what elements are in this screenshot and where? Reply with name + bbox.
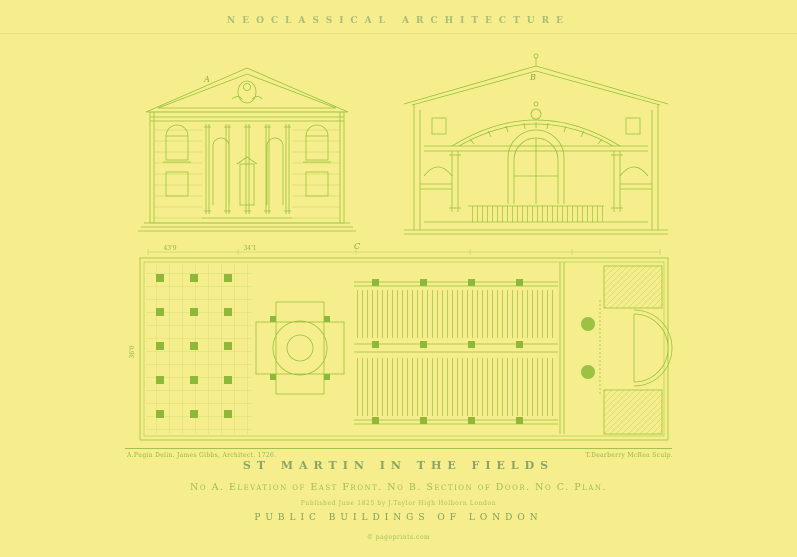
section-pews xyxy=(468,206,604,222)
publication-line: Published June 1825 by J.Taylor High Hol… xyxy=(0,500,797,507)
architectural-plate-page: NEOCLASSICAL ARCHITECTURE xyxy=(0,0,797,557)
flank-windows xyxy=(163,125,331,196)
roof xyxy=(404,54,668,105)
dimension-label-left: 43'9 xyxy=(163,245,176,252)
nave xyxy=(354,279,558,424)
plan-drawing xyxy=(140,249,672,440)
dimension-label-side: 36'0 xyxy=(129,345,136,358)
vestibule-lobby xyxy=(256,302,344,394)
plate-ground-line xyxy=(125,448,672,449)
figure-label-b: B xyxy=(529,73,536,82)
chancel-arch-window xyxy=(508,130,564,204)
figure-label-c: C xyxy=(354,242,360,251)
pediment xyxy=(146,68,348,112)
plate-subtitle: No A. Elevation of East Front. No B. Sec… xyxy=(0,482,797,493)
chancel xyxy=(560,262,672,434)
credit-architect: A.Pugin Delin. James Gibbs, Architect. 1… xyxy=(127,452,276,459)
dimension-label-right: 34'1 xyxy=(243,245,256,252)
section-drawing xyxy=(404,54,668,234)
portico-columns xyxy=(202,124,292,218)
credit-engraver: T.Dearberry McRea Sculp. xyxy=(585,452,673,459)
copyright-text: © pageprints.com xyxy=(0,534,797,541)
dimension-line xyxy=(148,249,660,255)
figure-label-a: A xyxy=(203,75,210,84)
plate-artwork: A B C 43'9 34'1 36'0 xyxy=(0,0,797,557)
series-title: PUBLIC BUILDINGS OF LONDON xyxy=(0,513,797,523)
plate-title: ST MARTIN IN THE FIELDS xyxy=(0,459,797,472)
portico-openings xyxy=(213,138,283,205)
elevation-east-front-drawing xyxy=(138,68,356,231)
